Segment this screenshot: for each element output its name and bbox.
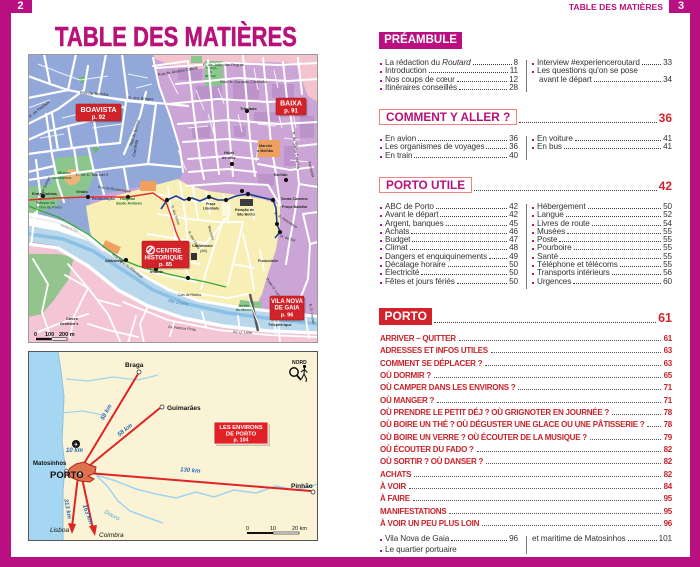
svg-text:Guimarães: Guimarães bbox=[167, 405, 201, 412]
svg-text:0: 0 bbox=[34, 332, 37, 338]
svg-text:p. 96: p. 96 bbox=[281, 313, 294, 319]
svg-text:Funiculaire: Funiculaire bbox=[258, 259, 278, 263]
svg-text:de ville: de ville bbox=[222, 155, 236, 160]
svg-text:200 m: 200 m bbox=[59, 332, 75, 338]
svg-text:Marché: Marché bbox=[259, 144, 272, 148]
svg-text:Liberdade: Liberdade bbox=[203, 207, 219, 211]
svg-text:CENTRE: CENTRE bbox=[156, 248, 181, 255]
svg-text:10: 10 bbox=[270, 526, 276, 532]
svg-text:p. 92: p. 92 bbox=[92, 115, 106, 121]
svg-text:Vinho do Porto: Vinho do Porto bbox=[36, 206, 62, 210]
svg-text:LES ENVIRONS: LES ENVIRONS bbox=[219, 425, 262, 431]
svg-text:BOAVISTA: BOAVISTA bbox=[80, 105, 116, 114]
svg-text:Praça Batalha: Praça Batalha bbox=[282, 205, 308, 209]
svg-text:Hospital: Hospital bbox=[120, 197, 135, 201]
svg-text:Coimbra: Coimbra bbox=[99, 532, 124, 539]
svg-text:HISTORIQUE: HISTORIQUE bbox=[145, 255, 183, 262]
svg-text:PORTO: PORTO bbox=[50, 470, 84, 481]
svg-text:(84): (84) bbox=[200, 248, 208, 253]
svg-text:Bolhão: Bolhão bbox=[274, 172, 288, 177]
svg-text:o Bolhão: o Bolhão bbox=[257, 149, 274, 153]
svg-text:Braga: Braga bbox=[125, 362, 144, 369]
svg-text:Pinhão: Pinhão bbox=[291, 483, 313, 490]
svg-text:Infante: Infante bbox=[150, 269, 164, 274]
svg-text:Viriato: Viriato bbox=[76, 190, 88, 194]
svg-text:Téléphérique: Téléphérique bbox=[268, 323, 292, 327]
svg-text:Lisboa: Lisboa bbox=[50, 527, 70, 534]
svg-text:p. 91: p. 91 bbox=[284, 108, 298, 114]
svg-text:Santa Catarina: Santa Catarina bbox=[281, 197, 308, 201]
svg-text:romântico: romântico bbox=[52, 175, 72, 180]
svg-text:R. de D. Manuel II: R. de D. Manuel II bbox=[76, 172, 108, 177]
svg-text:BAIXA: BAIXA bbox=[280, 101, 302, 108]
svg-text:100: 100 bbox=[45, 332, 54, 338]
svg-text:Entre Quintas: Entre Quintas bbox=[32, 192, 57, 196]
svg-text:Museu do: Museu do bbox=[38, 201, 56, 205]
svg-text:São Bento: São Bento bbox=[237, 213, 256, 217]
svg-text:VILA NOVA: VILA NOVA bbox=[271, 299, 304, 305]
svg-text:p. 85: p. 85 bbox=[159, 262, 173, 268]
svg-text:DE GAIA: DE GAIA bbox=[274, 306, 300, 312]
svg-text:Trindade: Trindade bbox=[240, 106, 257, 111]
svg-text:p. 104: p. 104 bbox=[233, 438, 248, 444]
svg-text:Graham's: Graham's bbox=[60, 321, 79, 326]
svg-text:Estação de: Estação de bbox=[235, 208, 254, 212]
svg-text:REPUB.: REPUB. bbox=[205, 74, 217, 78]
svg-text:Praça: Praça bbox=[206, 202, 215, 206]
svg-text:20 km: 20 km bbox=[292, 526, 307, 532]
svg-text:10 km: 10 km bbox=[66, 448, 84, 454]
svg-text:Rua de Gonçalo Cristóvão: Rua de Gonçalo Cristóvão bbox=[220, 79, 268, 84]
svg-text:du Morro: du Morro bbox=[236, 308, 252, 312]
svg-text:R. de João das Regras: R. de João das Regras bbox=[203, 62, 244, 67]
svg-text:Santo António: Santo António bbox=[116, 202, 142, 206]
svg-text:Cais de Ribeira: Cais de Ribeira bbox=[178, 293, 201, 297]
svg-text:0: 0 bbox=[246, 526, 249, 532]
svg-text:Matosinhos: Matosinhos bbox=[33, 461, 67, 467]
svg-text:Restauração: Restauração bbox=[92, 197, 115, 201]
